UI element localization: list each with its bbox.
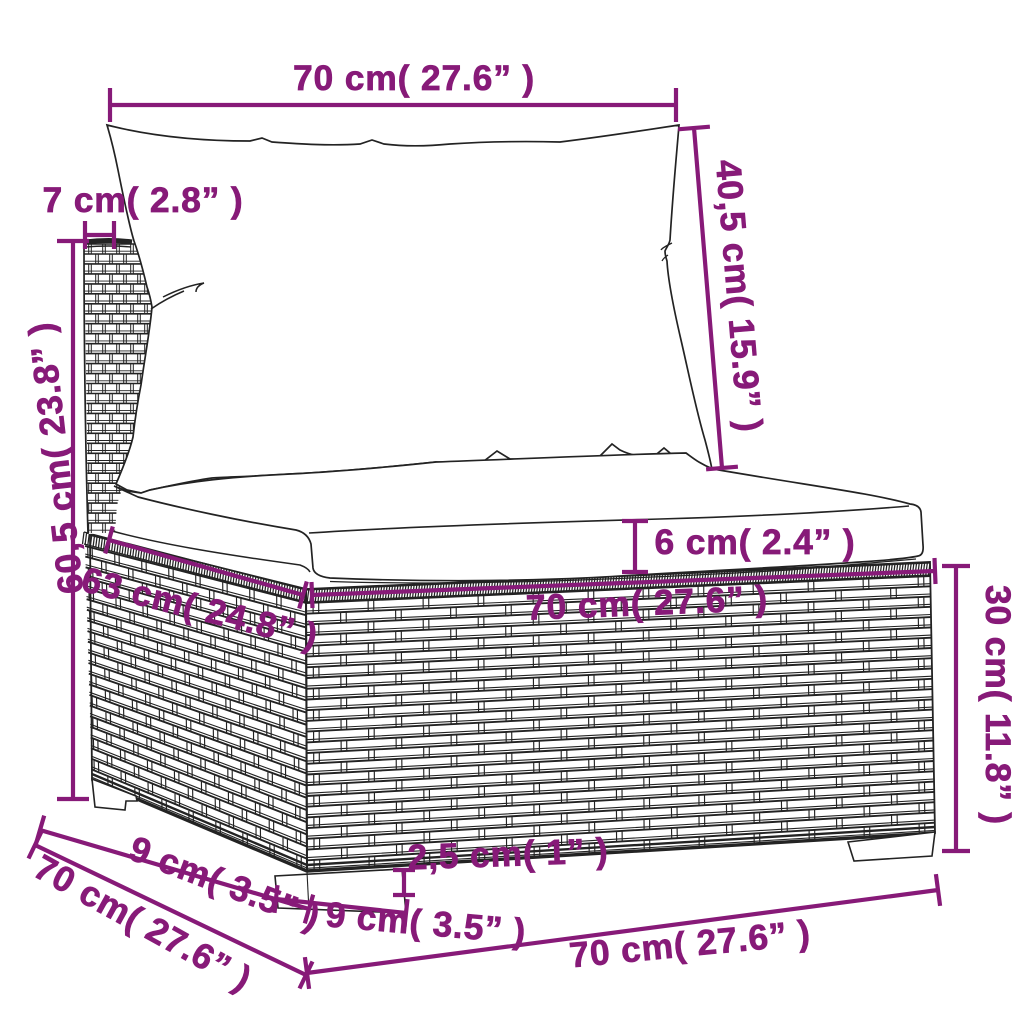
svg-text:30 cm( 11.8” ): 30 cm( 11.8” ) xyxy=(978,585,1018,825)
svg-text:6 cm( 2.4” ): 6 cm( 2.4” ) xyxy=(655,522,856,562)
svg-text:7 cm( 2.8” ): 7 cm( 2.8” ) xyxy=(43,180,244,220)
svg-text:2,5 cm( 1” ): 2,5 cm( 1” ) xyxy=(407,831,609,878)
svg-text:70 cm( 27.6” ): 70 cm( 27.6” ) xyxy=(293,58,535,98)
